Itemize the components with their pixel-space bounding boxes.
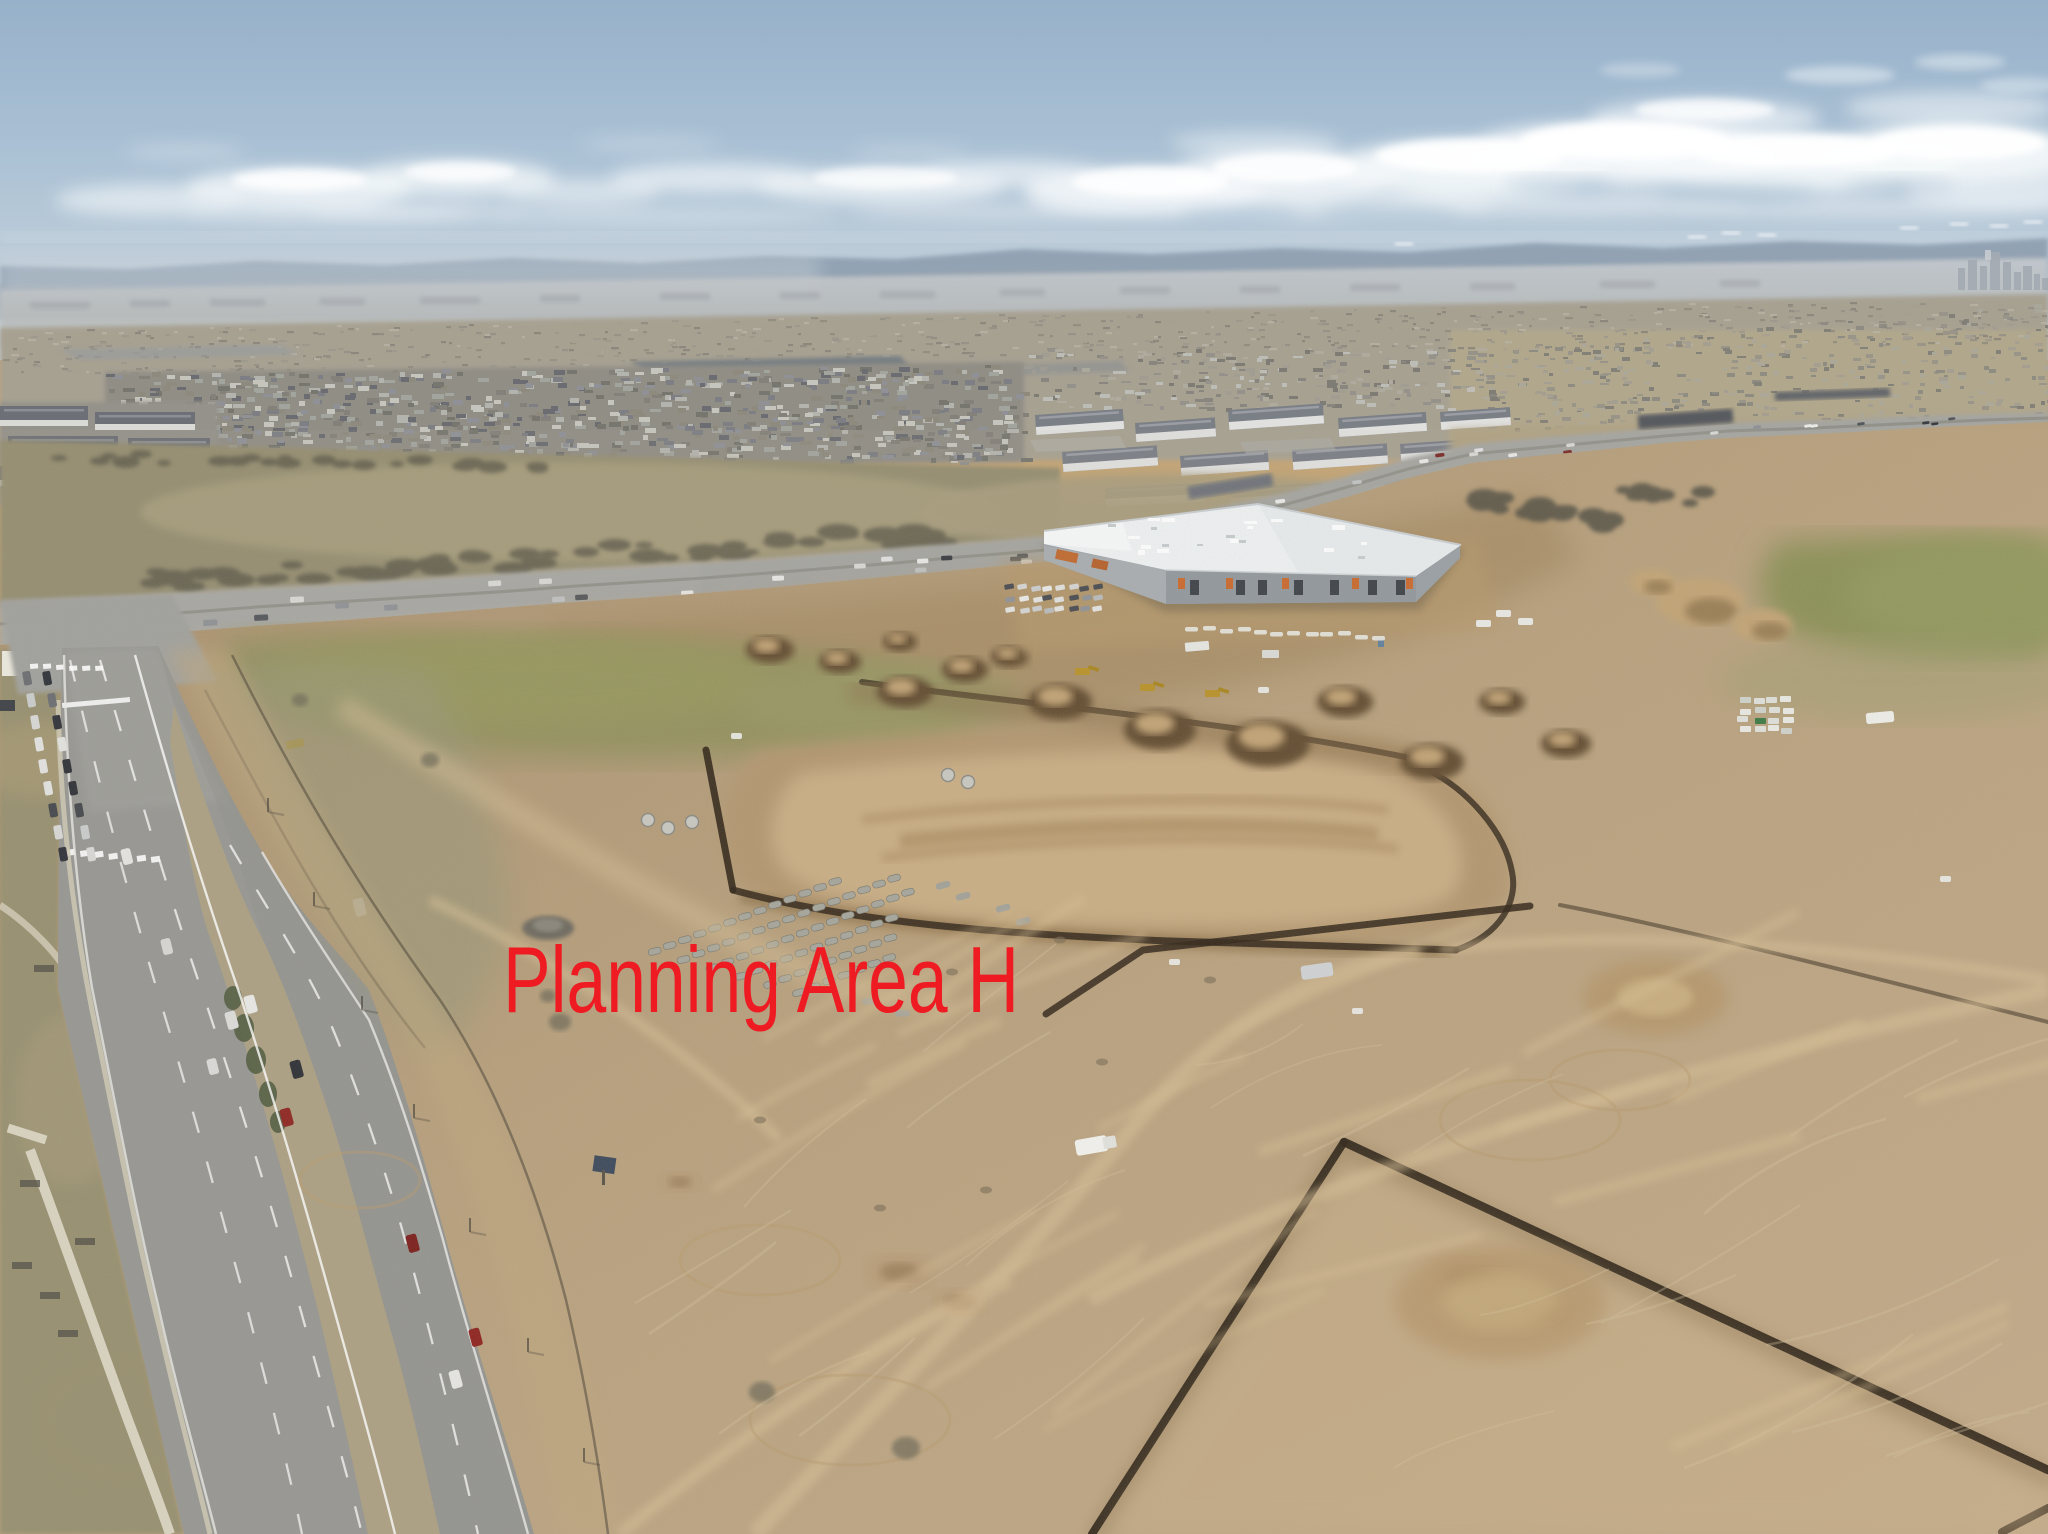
svg-text:Planning Area H: Planning Area H: [503, 927, 1019, 1032]
